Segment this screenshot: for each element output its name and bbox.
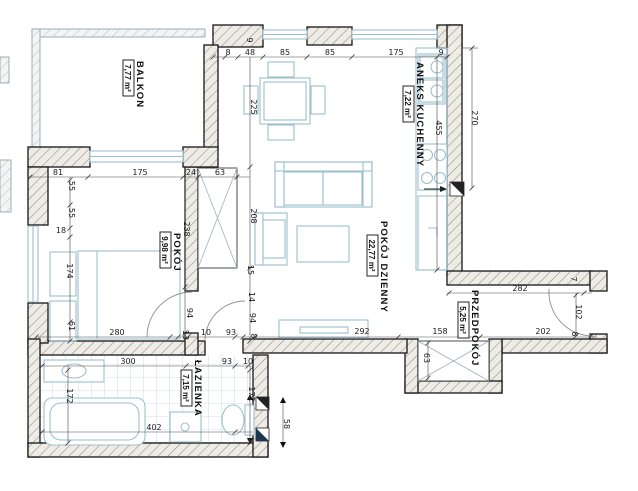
dim-label: 280: [109, 328, 124, 337]
dim-label: 174: [65, 263, 74, 278]
dim-label: 58: [282, 419, 291, 429]
dim-label: 292: [354, 327, 369, 336]
dim-label: 172: [247, 386, 256, 401]
bedroom-side-window: [28, 226, 38, 302]
dim-label: 225: [249, 99, 258, 114]
room-name: ANEKS KUCHENNY: [414, 62, 425, 167]
dim-label: 10: [201, 328, 211, 337]
room-area: 7,22 m²: [403, 90, 412, 118]
floor-plan-page: 9 8 48 85 85 175 9 270 455 225 208 81 17…: [0, 0, 638, 491]
dim-label: 63: [422, 353, 431, 363]
dim-label: 61: [67, 321, 76, 331]
dim-label: 158: [432, 327, 447, 336]
dim-label: 102: [574, 304, 583, 319]
room-label-balkon: BALKON 7,77 m²: [123, 60, 145, 108]
dim-label: 15: [246, 265, 255, 275]
dim-label: 202: [535, 327, 550, 336]
dim-label: 94: [248, 313, 257, 323]
bathroom-vent-symbol-lower: [256, 428, 269, 441]
window-top-right: [352, 30, 437, 39]
floor-plan-drawing: 9 8 48 85 85 175 9 270 455 225 208 81 17…: [0, 0, 638, 491]
room-area: 7,15 m²: [181, 374, 190, 402]
dim-label: 93: [222, 357, 232, 366]
bathtub: [44, 398, 145, 445]
dim-label: 175: [388, 48, 403, 57]
armchair: [255, 213, 287, 265]
dim-label: 175: [132, 168, 147, 177]
dim-label: 94: [185, 308, 194, 318]
coffee-table: [297, 226, 349, 262]
dim-label: 18: [56, 226, 66, 235]
dim-label: 24: [186, 168, 196, 177]
dim-label: 282: [512, 284, 527, 293]
chair-top: [268, 62, 294, 77]
dim-label: 402: [146, 423, 161, 432]
room-area: 5,25 m²: [458, 306, 467, 334]
dim-label: 300: [120, 357, 135, 366]
room-area: 9,98 m²: [160, 236, 169, 264]
vanity-sink: [44, 360, 104, 382]
room-area: 7,77 m²: [123, 64, 132, 92]
dim-label: 10: [243, 357, 253, 366]
room-name: POKÓJ: [171, 233, 183, 272]
room-name: ŁAZIENKA: [192, 360, 203, 417]
dim-label: 172: [65, 388, 74, 403]
wardrobe-bedroom-wall: [198, 168, 237, 268]
room-name: POKÓJ DZIENNY: [378, 221, 390, 313]
dim-label: 7: [569, 276, 578, 281]
entry-door-arc: [549, 289, 593, 336]
kitchen-cabinet: [418, 196, 447, 270]
dim-label: 93: [226, 328, 236, 337]
dim-label: 8: [570, 331, 579, 336]
dim-label: 81: [53, 168, 63, 177]
dim-label: 270: [470, 110, 479, 125]
room-name: BALKON: [134, 61, 145, 108]
dim-label: 63: [215, 168, 225, 177]
dim-label: 208: [249, 208, 258, 223]
chair-right: [311, 86, 325, 114]
dim-label: 8: [225, 48, 230, 57]
dim-label: 13: [181, 330, 190, 340]
dim-label: 455: [434, 120, 443, 135]
dim-label: 9: [438, 48, 443, 57]
dim-label: 8: [249, 333, 258, 338]
dim-label: 85: [280, 48, 290, 57]
toilet: [222, 405, 254, 435]
dim-label: 14: [247, 292, 256, 302]
chair-bottom: [268, 125, 294, 140]
room-label-pokoj: POKÓJ 9,98 m²: [160, 232, 183, 272]
dim-label: 55: [67, 208, 76, 218]
dim-label: 55: [67, 181, 76, 191]
window-top-left: [263, 30, 307, 39]
dim-label: 48: [245, 48, 255, 57]
dim-arrow-icon: [280, 397, 286, 403]
sofa: [275, 162, 372, 207]
doors: [147, 289, 593, 341]
dim-label: 9: [245, 37, 254, 42]
dim-label: 85: [325, 48, 335, 57]
room-label-aneks-kuchenny: ANEKS KUCHENNY 7,22 m²: [403, 62, 425, 167]
room-label-pokoj-dzienny: POKÓJ DZIENNY 22,77 m²: [367, 221, 390, 313]
room-area: 22,77 m²: [367, 239, 376, 271]
dim-arrow-icon: [280, 442, 286, 448]
bathroom-vent-symbol-upper: [256, 397, 269, 410]
symbols: [247, 182, 464, 444]
room-name: PRZEDPOKÓJ: [469, 290, 481, 366]
dim-label: 238: [182, 221, 191, 236]
balcony-door-window: [90, 151, 183, 162]
